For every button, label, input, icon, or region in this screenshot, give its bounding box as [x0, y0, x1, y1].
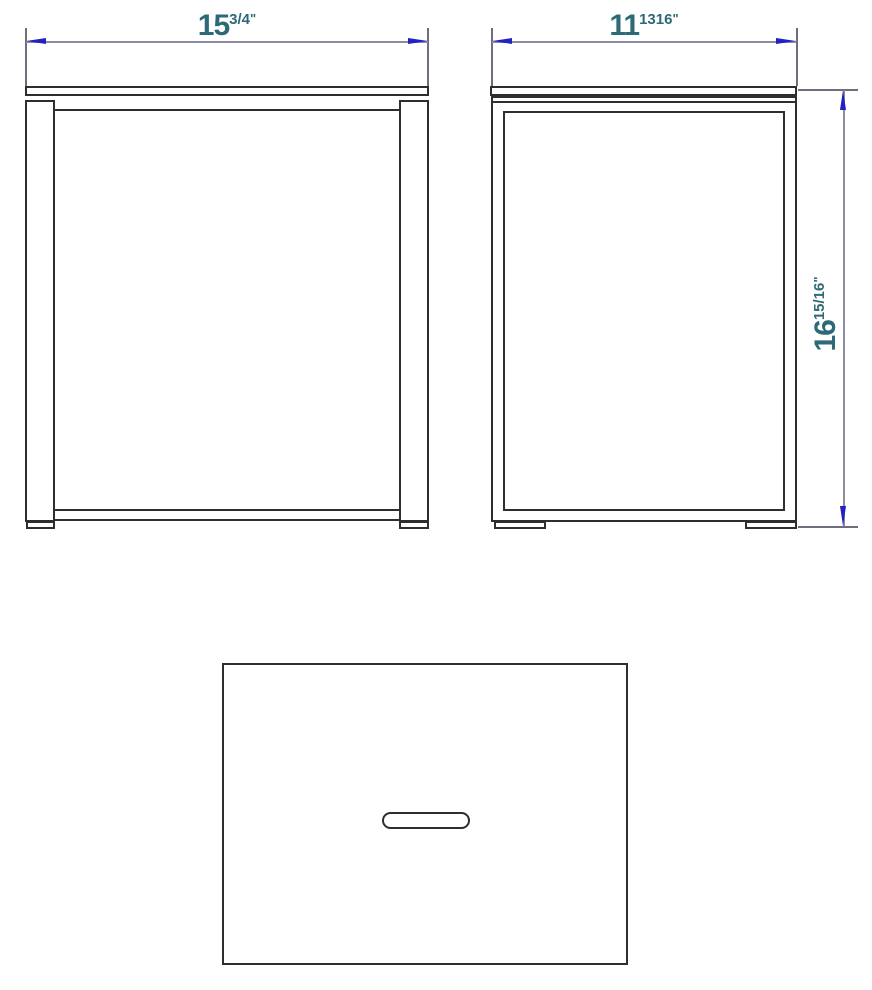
front-width-unit: "	[250, 12, 256, 25]
arrow-left-icon	[26, 38, 46, 44]
front-leg-right	[399, 100, 429, 522]
side-depth-extension-right	[796, 28, 798, 86]
side-inner-panel	[503, 111, 785, 511]
front-leg-left	[25, 100, 55, 522]
side-depth-value: 11	[609, 11, 639, 41]
height-extension-bottom	[798, 526, 858, 528]
arrow-left-icon	[492, 38, 512, 44]
side-tabletop	[490, 86, 797, 96]
front-width-extension-right	[427, 28, 429, 86]
front-width-extension-left	[25, 28, 27, 86]
arrow-right-icon	[408, 38, 428, 44]
side-depth-fraction: 1316	[639, 12, 672, 27]
height-dimension-line	[843, 90, 845, 526]
arrow-right-icon	[776, 38, 796, 44]
side-depth-unit: "	[672, 12, 678, 25]
front-foot-right	[399, 521, 429, 529]
arrow-up-icon	[840, 90, 846, 110]
side-depth-extension-left	[491, 28, 493, 86]
side-depth-label: 11 1316 "	[609, 11, 678, 41]
side-tabletop-underside-line	[491, 101, 797, 103]
front-apron-line	[55, 109, 399, 111]
side-foot-left	[494, 521, 546, 529]
front-width-value: 15	[198, 11, 229, 41]
side-foot-right	[745, 521, 797, 529]
height-value: 16	[811, 320, 841, 351]
top-handle-slot	[382, 812, 470, 829]
front-width-label: 15 3/4 "	[198, 11, 256, 41]
height-label: 16 15/16 "	[811, 276, 841, 351]
dimension-drawing-canvas: 15 3/4 " 11 1316 " 16 15/16 "	[0, 0, 872, 990]
height-unit: "	[812, 276, 825, 282]
front-foot-left	[26, 521, 55, 529]
arrow-down-icon	[840, 506, 846, 526]
front-shelf-bottom-line	[55, 519, 399, 521]
side-depth-dimension-line	[492, 41, 796, 43]
height-fraction: 15/16	[812, 283, 827, 321]
front-width-fraction: 3/4	[229, 12, 250, 27]
front-tabletop	[25, 86, 429, 96]
height-extension-top	[798, 89, 858, 91]
front-shelf-top-line	[55, 509, 399, 511]
